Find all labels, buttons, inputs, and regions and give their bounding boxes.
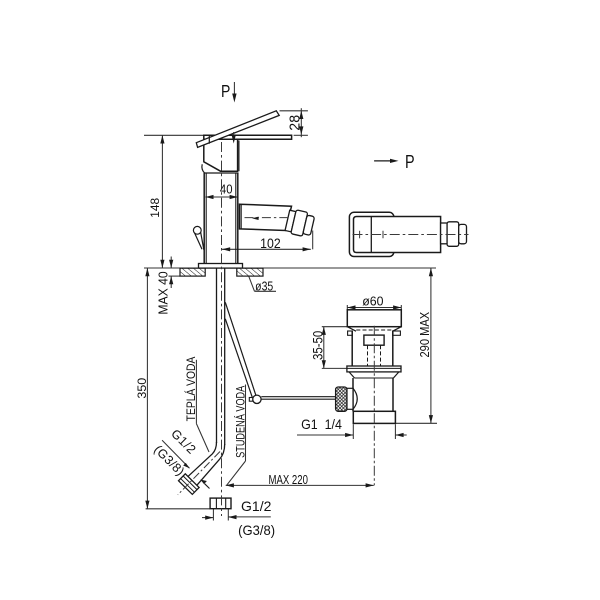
svg-text:350: 350 bbox=[135, 378, 149, 399]
svg-text:35-50: 35-50 bbox=[310, 331, 325, 360]
svg-text:148: 148 bbox=[148, 198, 162, 218]
svg-text:G1/2: G1/2 bbox=[241, 498, 272, 514]
svg-text:MAX 40: MAX 40 bbox=[156, 271, 170, 314]
svg-text:ø35: ø35 bbox=[255, 280, 274, 294]
svg-text:MAX 220: MAX 220 bbox=[269, 474, 308, 487]
svg-text:P: P bbox=[221, 81, 230, 101]
svg-text:28: 28 bbox=[287, 115, 303, 131]
svg-text:(G3/8): (G3/8) bbox=[238, 523, 275, 539]
svg-text:102: 102 bbox=[260, 235, 281, 251]
svg-text:TEPLÁ VODA: TEPLÁ VODA bbox=[184, 356, 198, 421]
svg-text:G1 1/4: G1 1/4 bbox=[301, 417, 342, 433]
svg-text:STUDENÁ VODA: STUDENÁ VODA bbox=[233, 385, 248, 458]
svg-text:P: P bbox=[405, 151, 415, 172]
svg-text:290 MAX: 290 MAX bbox=[417, 312, 432, 358]
svg-text:40: 40 bbox=[220, 182, 233, 197]
svg-text:ø60: ø60 bbox=[362, 294, 383, 308]
